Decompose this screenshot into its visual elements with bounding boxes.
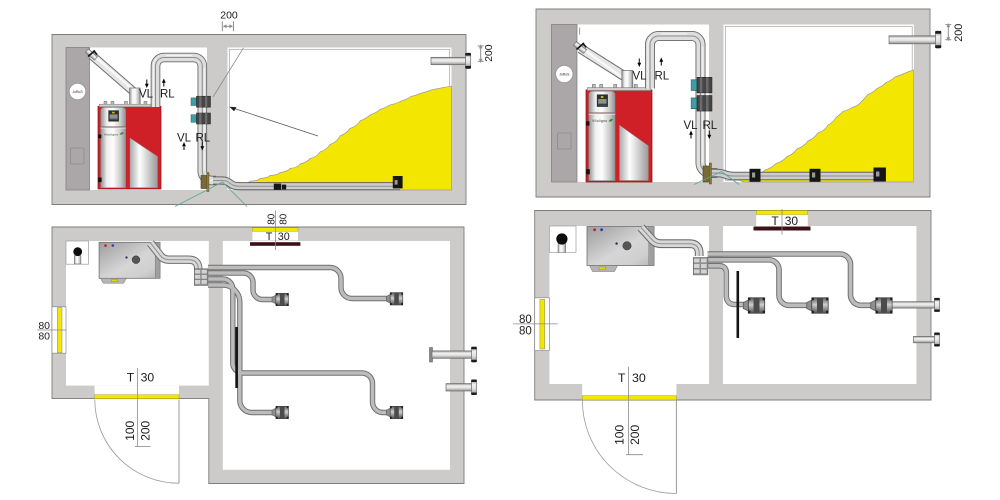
- svg-text:RL: RL: [160, 89, 175, 101]
- svg-text:JoRoS: JoRoS: [559, 73, 570, 77]
- svg-text:30: 30: [785, 214, 799, 228]
- svg-text:30: 30: [141, 371, 155, 385]
- svg-text:200: 200: [139, 420, 153, 440]
- svg-text:30: 30: [632, 371, 646, 385]
- svg-text:200: 200: [484, 44, 495, 61]
- svg-text:100: 100: [612, 425, 626, 445]
- svg-text:RL: RL: [655, 71, 670, 83]
- svg-text:80: 80: [519, 326, 532, 338]
- svg-text:80: 80: [38, 331, 50, 343]
- svg-text:T: T: [127, 371, 135, 385]
- svg-text:200: 200: [953, 24, 965, 42]
- svg-text:T: T: [618, 371, 626, 385]
- svg-text:RL: RL: [196, 133, 211, 145]
- svg-text:VL: VL: [139, 89, 154, 101]
- svg-text:VL: VL: [684, 120, 699, 132]
- svg-text:200: 200: [628, 425, 642, 445]
- svg-text:VL: VL: [177, 133, 192, 145]
- svg-text:T: T: [771, 214, 779, 228]
- svg-text:VL: VL: [633, 71, 648, 83]
- svg-text:T: T: [266, 231, 273, 243]
- svg-text:JoRoS: JoRoS: [72, 90, 83, 94]
- svg-text:200: 200: [220, 10, 238, 22]
- svg-text:30: 30: [278, 231, 290, 243]
- svg-text:80: 80: [278, 213, 289, 225]
- svg-text:80: 80: [266, 213, 277, 225]
- svg-text:100: 100: [123, 420, 137, 440]
- svg-text:RL: RL: [703, 120, 718, 132]
